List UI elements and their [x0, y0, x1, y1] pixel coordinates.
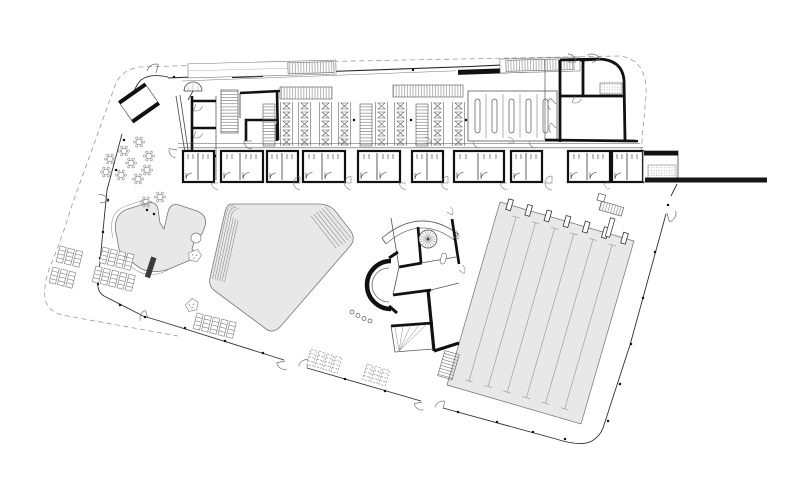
spiral-stair	[419, 230, 437, 248]
whirlpool	[191, 233, 201, 243]
locker-bank-top-1	[280, 87, 332, 99]
floor-plan-canvas	[0, 0, 800, 480]
grate-area	[600, 83, 622, 94]
long-wall-east	[645, 178, 767, 183]
changing-cubicles	[468, 91, 557, 148]
band-end-room	[643, 151, 678, 182]
main-stair	[221, 90, 238, 133]
locker-col-3	[416, 104, 428, 146]
locker-col-2	[360, 104, 372, 146]
locker-col-1	[263, 104, 275, 146]
floor-plan-page	[0, 0, 800, 480]
locker-bank-top-2	[393, 85, 463, 97]
